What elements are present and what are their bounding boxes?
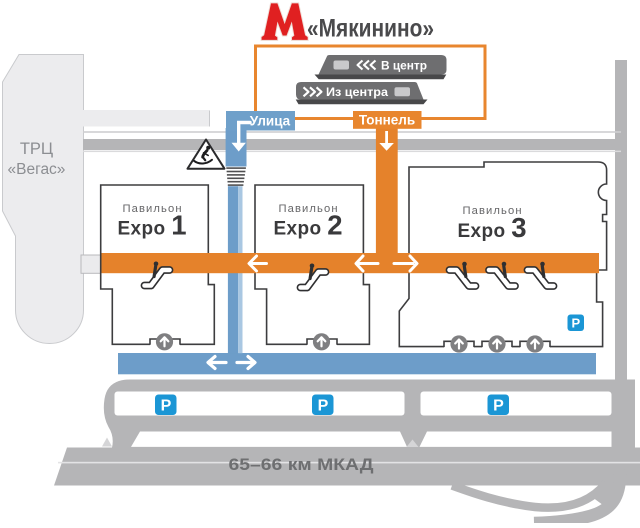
svg-text:Улица: Улица: [250, 114, 291, 129]
svg-text:«Мякинино»: «Мякинино»: [307, 15, 434, 43]
svg-text:ТРЦ: ТРЦ: [20, 140, 53, 158]
svg-text:65–66 км МКАД: 65–66 км МКАД: [229, 456, 374, 474]
svg-text:P: P: [571, 316, 580, 331]
svg-text:Из центра: Из центра: [326, 87, 389, 99]
svg-text:Тоннель: Тоннель: [359, 113, 415, 128]
svg-text:«Вегас»: «Вегас»: [8, 161, 66, 178]
svg-text:В центр: В центр: [381, 60, 427, 72]
